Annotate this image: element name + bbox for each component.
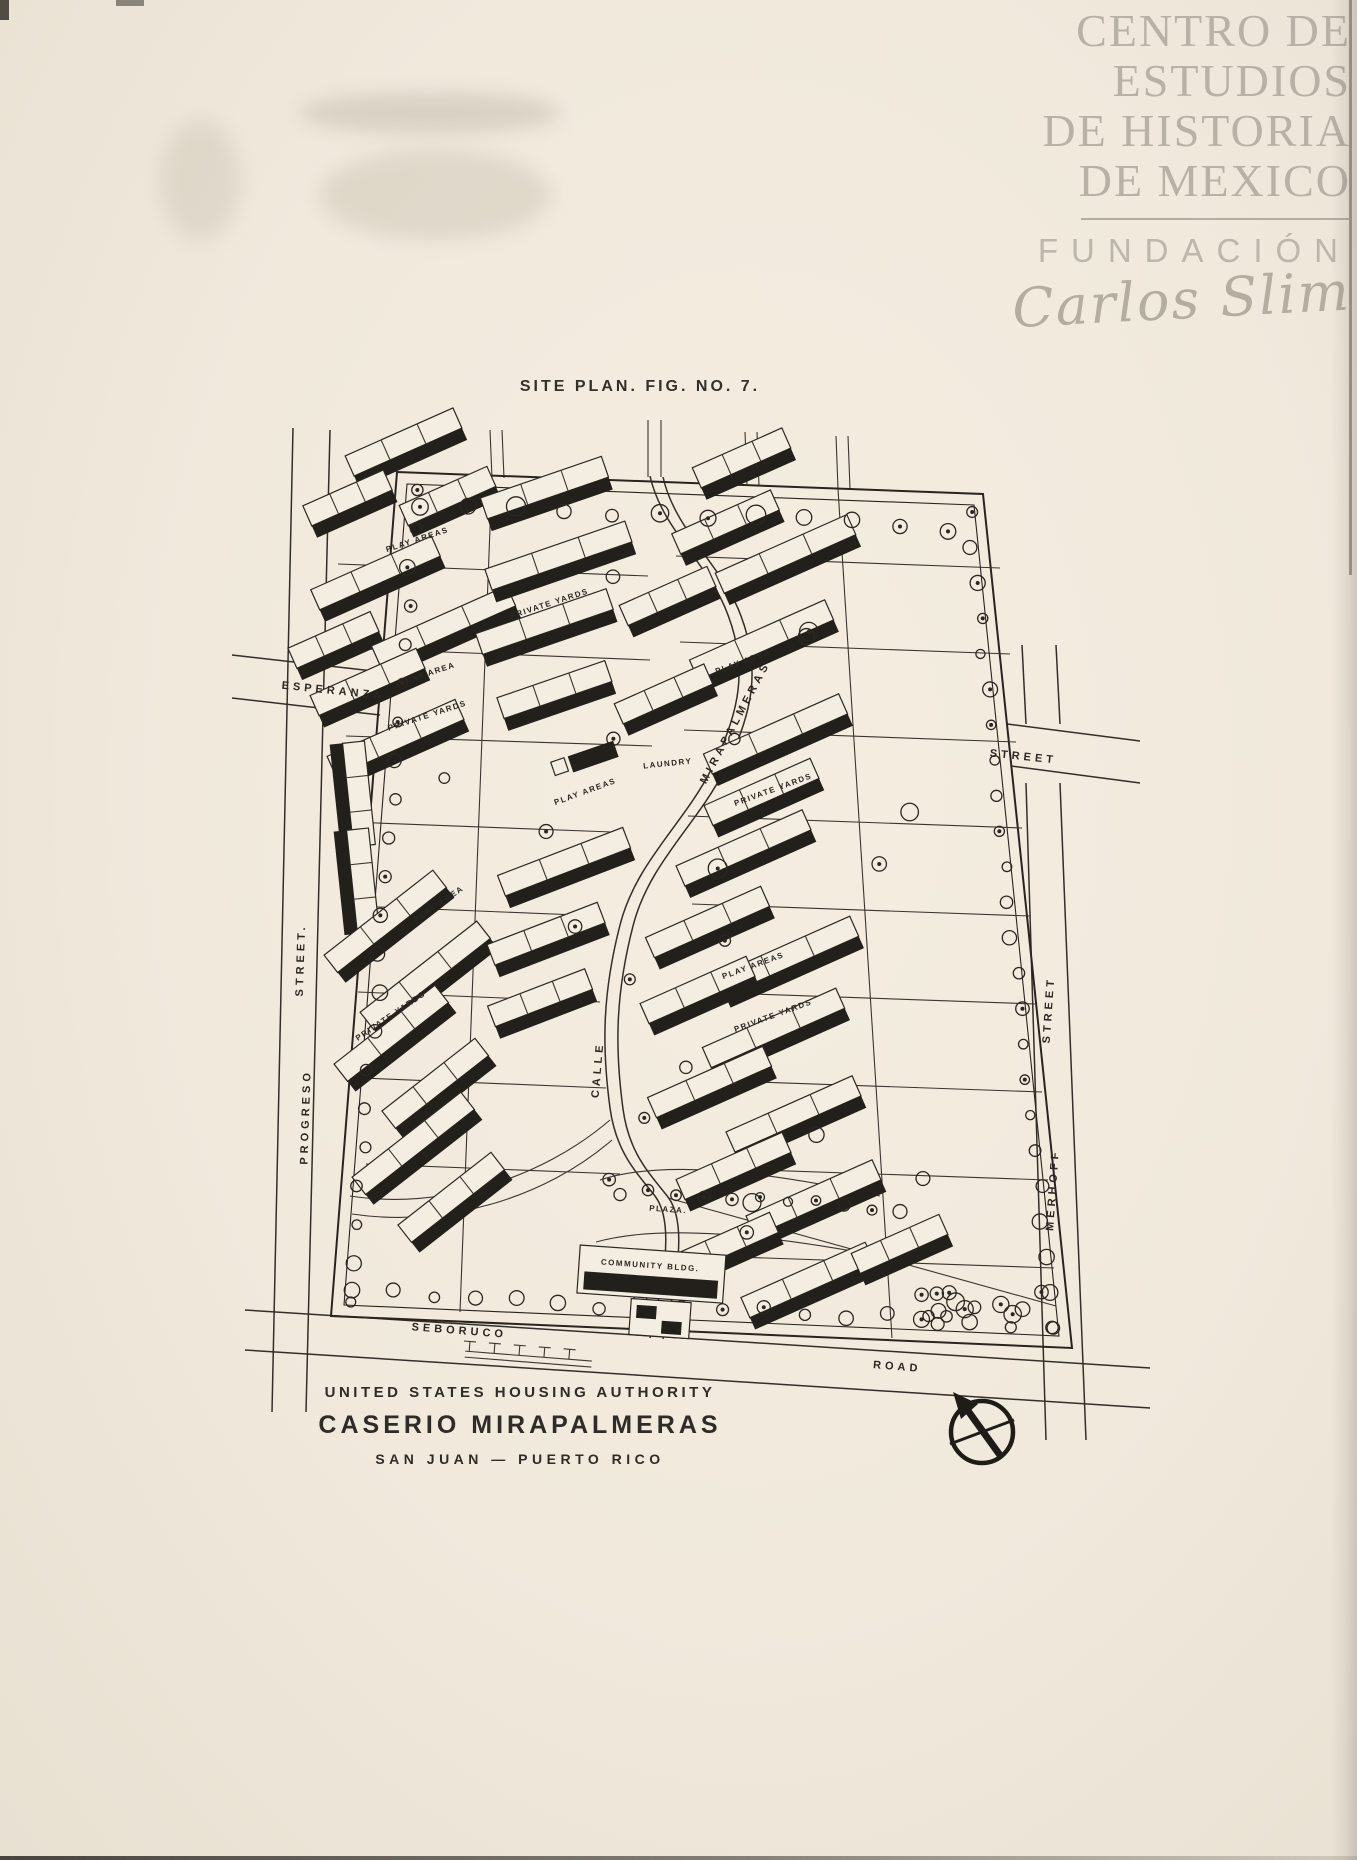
page-bottom-edge: [0, 1856, 1357, 1860]
building-row: [480, 456, 612, 531]
tree-symbol: [1011, 1312, 1015, 1316]
tree-symbol: [730, 1197, 734, 1201]
small-buildings: [629, 1299, 691, 1339]
tree-symbol: [981, 616, 985, 620]
tree-symbol: [1023, 1078, 1027, 1082]
tree-symbol: [628, 977, 632, 981]
page-edge-shadow: [1331, 0, 1357, 1860]
tree-symbol: [946, 529, 950, 533]
tree-symbol: [814, 1199, 818, 1203]
tree-symbol: [469, 1291, 483, 1305]
tree-symbol: [383, 875, 387, 879]
tree-symbol: [1039, 1290, 1043, 1294]
building-row: [645, 886, 774, 969]
tree-symbol: [916, 1172, 930, 1186]
building-row: [311, 536, 446, 622]
tree-symbol: [997, 829, 1001, 833]
tree-symbol: [721, 1308, 725, 1312]
street-label-progreso: PROGRESO: [298, 1069, 313, 1165]
building-row: [498, 827, 636, 908]
tree-symbol: [557, 504, 571, 518]
street-label-street-top-right: STREET: [989, 748, 1057, 767]
tree-symbol: [796, 510, 812, 526]
tree-symbol: [606, 570, 619, 583]
tree-symbol: [839, 1311, 853, 1325]
site-plan-drawing: ESPERANZA STREET PROGRESO STREET. MERHOF…: [0, 0, 1357, 1860]
caption-agency: UNITED STATES HOUSING AUTHORITY: [318, 1384, 722, 1401]
tree-symbol: [970, 510, 974, 514]
tree-symbol: [642, 1116, 646, 1120]
corner-mark: [0, 0, 9, 20]
tree-symbol: [920, 1317, 924, 1321]
scale-bar: [463, 1341, 593, 1367]
tree-symbol: [991, 790, 1002, 801]
tree-symbol: [989, 723, 993, 727]
building-row: [851, 1214, 953, 1285]
area-label: LAUNDRY: [643, 756, 693, 770]
tree-symbol: [606, 509, 619, 522]
tree-symbol: [947, 1291, 951, 1295]
tree-symbol: [968, 1301, 981, 1314]
tree-symbol: [1015, 1302, 1030, 1317]
tree-symbol: [901, 803, 919, 821]
tree-symbol: [963, 1307, 967, 1311]
north-arrow-icon: [950, 1392, 1014, 1463]
tree-symbol: [1039, 1249, 1054, 1264]
building-row: [303, 470, 398, 538]
tree-symbol: [409, 604, 413, 608]
tree-symbol: [1005, 1322, 1016, 1333]
tree-symbol: [880, 1307, 894, 1321]
building-row: [485, 521, 636, 602]
caption-location: SAN JUAN — PUERTO RICO: [318, 1451, 722, 1467]
tree-symbol: [1020, 1007, 1024, 1011]
tree-symbol: [723, 939, 727, 943]
tree-symbol: [359, 1103, 371, 1115]
tree-symbol: [702, 1195, 706, 1199]
tree-symbol: [716, 866, 720, 870]
tree-symbol: [429, 1292, 439, 1302]
building-row: [614, 664, 718, 736]
tree-symbol: [573, 925, 577, 929]
tree-symbol: [680, 1061, 692, 1073]
building-row: [619, 566, 721, 637]
laundry-building: [551, 741, 619, 779]
tree-symbol: [745, 1230, 749, 1234]
street-label-seboruco: SEBORUCO: [411, 1321, 507, 1340]
tree-symbol: [360, 1142, 371, 1153]
tree-symbol: [378, 913, 382, 917]
area-label: PLAY AREAS: [553, 776, 618, 807]
tree-symbol: [706, 516, 710, 520]
tree-symbol: [1002, 862, 1012, 872]
tree-symbol: [418, 505, 422, 509]
tree-symbol: [614, 1188, 626, 1200]
tree-symbol: [1026, 1111, 1035, 1120]
community-building: [577, 1245, 726, 1303]
tree-symbol: [611, 737, 615, 741]
tree-symbol: [999, 1302, 1003, 1306]
tree-symbol: [799, 1309, 810, 1320]
tree-symbol: [593, 1303, 605, 1315]
tree-symbol: [352, 1220, 362, 1230]
tree-symbol: [762, 1305, 766, 1309]
tree-symbol: [390, 794, 401, 805]
scan-speck: [116, 0, 144, 6]
tree-symbol: [893, 1205, 907, 1219]
tree-symbol: [658, 511, 662, 515]
tree-symbol: [405, 565, 409, 569]
tree-symbol: [607, 1178, 611, 1182]
tree-symbol: [439, 773, 450, 784]
tree-symbol: [509, 1291, 524, 1306]
building-row: [497, 661, 616, 731]
scanned-page: CENTRO DE ESTUDIOS DE HISTORIA DE MEXICO…: [0, 0, 1357, 1860]
tree-symbol: [1019, 1039, 1029, 1049]
street-label-road: ROAD: [873, 1359, 922, 1375]
tree-symbol: [758, 1195, 762, 1199]
building-row: [345, 408, 467, 488]
tree-symbol: [646, 1188, 650, 1192]
tree-symbol: [935, 1292, 939, 1296]
tree-symbol: [988, 687, 992, 691]
tree-symbol: [976, 581, 980, 585]
tree-symbol: [976, 649, 985, 658]
tree-symbol: [1000, 896, 1012, 908]
page-edge-line: [1349, 0, 1352, 575]
tree-symbol: [346, 1256, 361, 1271]
tree-symbol: [544, 830, 548, 834]
tree-symbol: [1013, 968, 1024, 979]
tree-symbol: [1029, 1145, 1041, 1157]
building-row: [488, 969, 598, 1039]
tree-symbol: [877, 862, 881, 866]
tree-symbol: [415, 488, 419, 492]
tree-symbol: [931, 1318, 944, 1331]
tree-symbol: [550, 1295, 565, 1310]
street-label-merhoff-street: STREET: [1041, 976, 1058, 1044]
tree-symbol: [870, 1208, 874, 1212]
tree-symbol: [386, 1283, 400, 1297]
caption-block: UNITED STATES HOUSING AUTHORITY CASERIO …: [318, 1384, 722, 1467]
tree-symbol: [898, 524, 902, 528]
tree-symbol: [674, 1193, 678, 1197]
street-label-progreso-street: STREET.: [294, 923, 309, 997]
tree-symbol: [344, 1282, 359, 1297]
area-label: PLAZA.: [649, 1204, 687, 1216]
street-label-calle: CALLE: [590, 1041, 607, 1099]
tree-symbol: [1002, 931, 1016, 945]
tree-symbol: [963, 541, 977, 555]
caption-project: CASERIO MIRAPALMERAS: [318, 1411, 722, 1440]
building-row: [692, 428, 796, 500]
tree-symbol: [920, 1293, 924, 1297]
tree-symbol: [383, 832, 395, 844]
